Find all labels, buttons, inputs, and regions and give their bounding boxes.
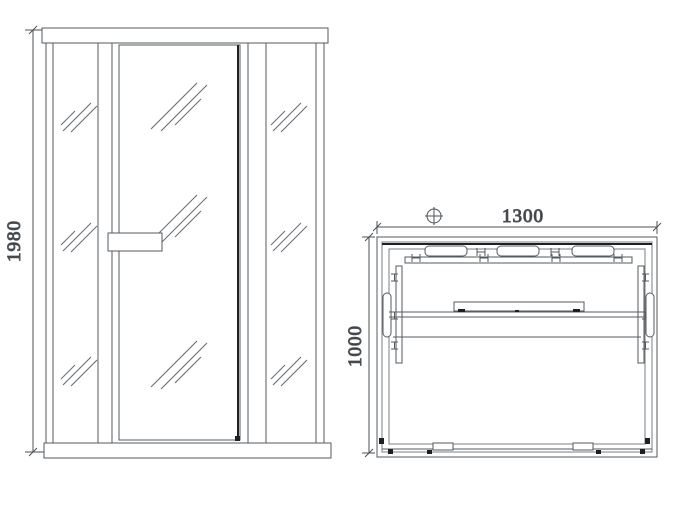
front-elevation-view: 1980 [4, 26, 331, 458]
door-corner-mark [235, 436, 240, 441]
wall-grip-right [646, 293, 654, 337]
drawing-sheet: 1980 [0, 0, 698, 514]
left-glass-panel-hatch [61, 103, 97, 386]
bench-front-edge [389, 312, 645, 337]
plan-walls [377, 237, 657, 457]
wall-grip-left [383, 293, 391, 337]
right-glass-panel-hatch [271, 103, 307, 386]
cabin-top-rail [42, 28, 328, 43]
technical-drawing-canvas: 1980 [0, 0, 698, 514]
door-handle [108, 233, 162, 251]
front-height-label: 1980 [4, 220, 25, 262]
plan-view: 1300 1000 [345, 206, 661, 457]
center-shelf [454, 302, 584, 312]
backrest-cushions [425, 246, 614, 256]
plan-depth-dimension: 1000 [345, 233, 375, 457]
track-roller-left [433, 443, 453, 450]
side-panel-left [391, 266, 402, 363]
front-height-dimension: 1980 [4, 26, 45, 456]
track-roller-right [573, 443, 593, 450]
plan-depth-label: 1000 [345, 325, 366, 367]
plan-width-label: 1300 [502, 206, 544, 227]
cabin-body-frame [46, 43, 324, 443]
cabin-bottom-rail [44, 443, 331, 458]
plan-width-dimension: 1300 [373, 206, 661, 234]
datum-target-icon [425, 207, 443, 225]
